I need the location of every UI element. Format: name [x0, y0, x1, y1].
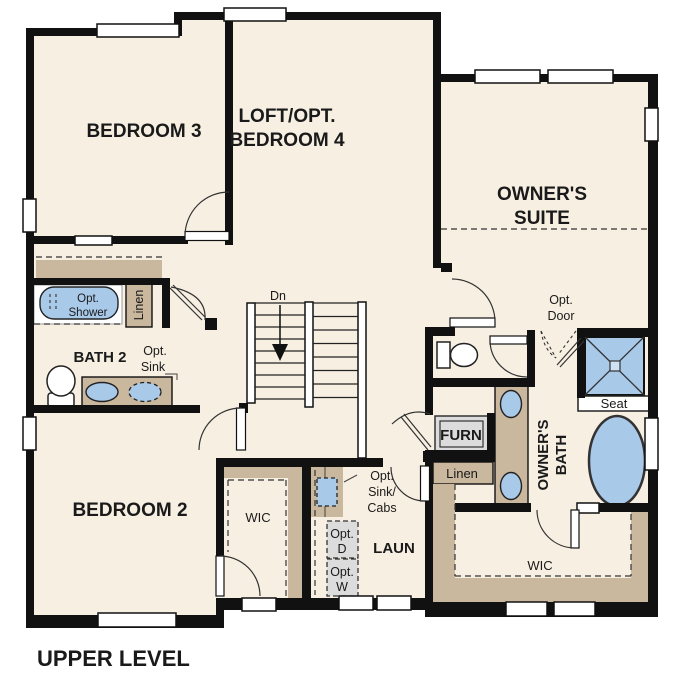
owners-linen-label: Linen [446, 466, 478, 481]
stair-rail-center [305, 302, 313, 407]
window [224, 8, 286, 21]
opt-door-label-line2: Door [547, 309, 574, 323]
owners-toilet-tank [437, 342, 450, 368]
bedroom2-label: BEDROOM 2 [72, 500, 187, 521]
owners-sink-2 [501, 473, 522, 500]
owners-suite-label-line1: OWNER'S [497, 184, 587, 205]
furnace-label: FURN [440, 427, 482, 444]
laundry-opt-sink [317, 478, 337, 506]
stair-rail-left [247, 303, 255, 403]
plan-title: UPPER LEVEL [37, 646, 190, 671]
stair-rail-right [358, 302, 366, 458]
window [23, 417, 36, 450]
bath2-linen-label: Linen [132, 290, 146, 321]
bedroom3-closet-shelf [36, 260, 162, 278]
opt-washer-label-line2: W [336, 580, 348, 594]
window [645, 418, 658, 470]
bath2-sink [86, 383, 118, 402]
toilet-room-door [490, 336, 527, 344]
owners-wic-shelf-bottom [433, 578, 648, 602]
bath2-linen-label-group: Linen [132, 290, 146, 321]
opt-washer-label-line1: Opt. [330, 565, 354, 579]
owners-wic-door [571, 510, 579, 548]
opt-dryer-label-line1: Opt. [330, 527, 354, 541]
shower-drain [610, 361, 620, 371]
window [242, 598, 276, 611]
cased-opening [577, 503, 599, 513]
opt-sink-cabs-label-line3: Cabs [367, 501, 396, 515]
bedroom3-door [185, 232, 229, 241]
floor-plan-page: BEDROOM 3 LOFT/OPT. BEDROOM 4 OWNER'S SU… [0, 0, 687, 687]
owners-suite-door [450, 318, 495, 327]
cased-opening [75, 236, 112, 245]
laundry-door [421, 466, 430, 501]
bath2-opt-sink [129, 383, 161, 402]
owners-tub [589, 416, 645, 506]
window [339, 596, 373, 610]
bedroom2-door [237, 408, 246, 450]
bedroom2-wic-door [216, 556, 224, 596]
window [506, 602, 547, 616]
owners-wic-shelf-right [631, 512, 648, 602]
window [97, 24, 179, 37]
owners-suite-label-line2: SUITE [514, 208, 570, 229]
stairs-down-label: Dn [270, 289, 286, 303]
opt-sink-cabs-label-line2: Sink/ [368, 485, 396, 499]
window [548, 70, 613, 83]
opt-shower-label-line2: Shower [69, 307, 108, 319]
loft-label-line1: LOFT/OPT. [238, 106, 335, 127]
owners-bath-label-line1: OWNER'S [535, 419, 552, 490]
window [645, 108, 658, 141]
opt-door-label-line1: Opt. [549, 293, 573, 307]
bath2-toilet-bowl [47, 366, 75, 396]
opt-shower-label-line1: Opt. [77, 293, 99, 305]
opt-sink-cabs-label-line1: Opt. [370, 469, 394, 483]
floor-plan-drawing: BEDROOM 3 LOFT/OPT. BEDROOM 4 OWNER'S SU… [0, 0, 687, 687]
bedroom2-wic-label: WIC [245, 510, 270, 525]
owners-toilet-bowl [451, 344, 478, 367]
shower-seat-label: Seat [601, 396, 628, 411]
window [377, 596, 411, 610]
owners-bath-label-line2: BATH [553, 435, 570, 476]
opt-sink-label-line2: Sink [141, 360, 166, 374]
owners-sink-1 [501, 391, 522, 418]
bath2-label: BATH 2 [73, 349, 126, 366]
window [23, 199, 36, 232]
laundry-label: LAUN [373, 540, 415, 557]
window [554, 602, 595, 616]
owners-wic-label: WIC [527, 558, 552, 573]
window [475, 70, 540, 83]
loft-label-line2: BEDROOM 4 [229, 130, 345, 151]
opt-dryer-label-line2: D [337, 542, 346, 556]
opt-sink-label-line1: Opt. [143, 344, 167, 358]
wic2-shelf-right [288, 462, 302, 598]
bedroom3-label: BEDROOM 3 [86, 121, 201, 142]
window [98, 613, 176, 627]
